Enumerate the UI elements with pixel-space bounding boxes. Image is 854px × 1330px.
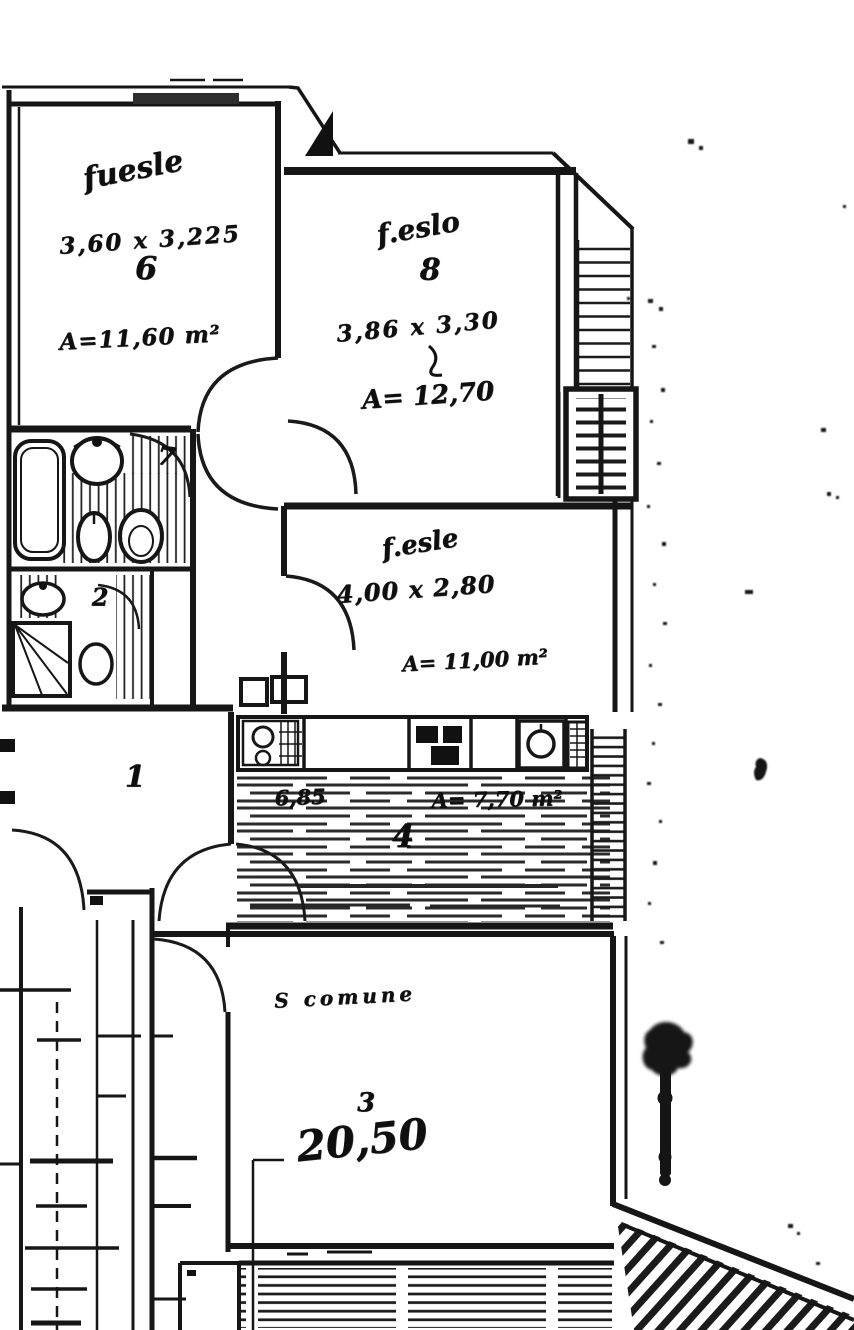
toilet-icon xyxy=(120,510,162,562)
shower-icon xyxy=(13,623,70,696)
floor-plan-drawing xyxy=(0,0,854,1330)
radiator-icon xyxy=(559,389,636,499)
bidet-icon xyxy=(78,513,110,561)
walls xyxy=(0,80,854,1330)
toilet-2-icon xyxy=(80,644,112,684)
washbasin-icon xyxy=(72,437,122,484)
ink-blot xyxy=(643,1022,693,1186)
floor-plan-canvas: fuesle 3,60 x 3,225 6 A=11,60 m² f.eslo … xyxy=(0,0,854,1330)
kitchen-floor-hatch xyxy=(237,775,610,922)
washbasin-2-icon xyxy=(22,582,64,615)
pen-squiggle xyxy=(429,346,442,375)
bathtub-icon xyxy=(15,441,64,559)
balcony-floor-hatch xyxy=(241,1268,612,1328)
